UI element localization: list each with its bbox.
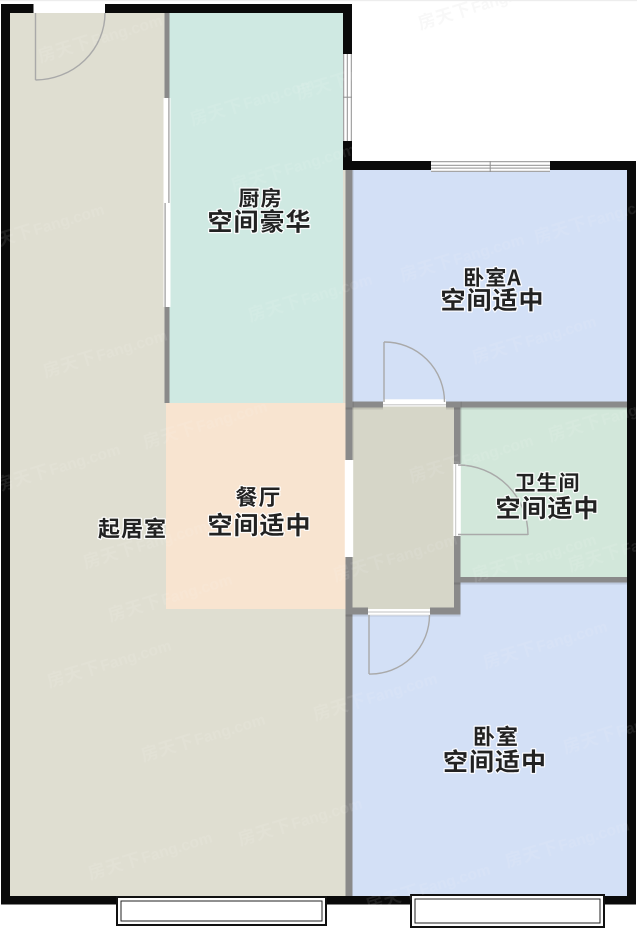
svg-text:Fang.com: Fang.com <box>347 49 422 87</box>
svg-text:Fang.com: Fang.com <box>469 0 544 17</box>
